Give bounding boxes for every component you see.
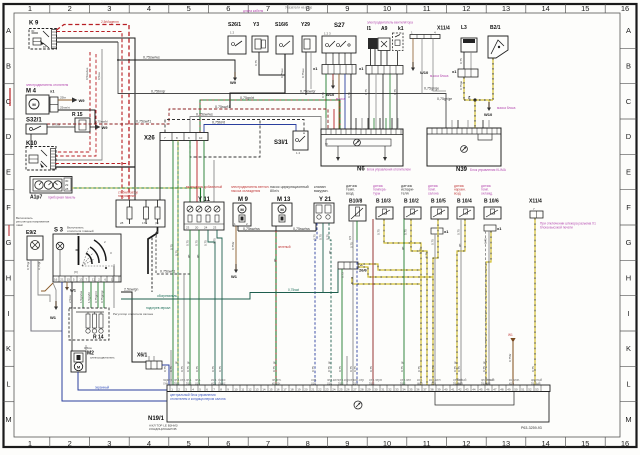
svg-text:10: 10 xyxy=(199,136,203,140)
svg-text:0,75sw: 0,75sw xyxy=(280,68,284,78)
svg-text:сер: сер xyxy=(485,381,490,385)
svg-text:13: 13 xyxy=(502,439,510,448)
svg-text:0,75: 0,75 xyxy=(326,234,330,240)
svg-text:0,75: 0,75 xyxy=(319,234,323,240)
svg-text:M: M xyxy=(625,415,631,424)
svg-text:30: 30 xyxy=(31,29,35,33)
svg-text:W1: W1 xyxy=(50,315,57,320)
svg-text:6: 6 xyxy=(226,439,230,448)
svg-text:0,75sw/bl: 0,75sw/bl xyxy=(95,120,108,124)
svg-text:16: 16 xyxy=(621,439,629,448)
svg-text:0,75: 0,75 xyxy=(180,366,184,372)
svg-text:R 14: R 14 xyxy=(93,335,104,341)
svg-text:26: 26 xyxy=(346,387,350,391)
svg-text:экранный: экранный xyxy=(95,386,109,390)
svg-text:W10: W10 xyxy=(484,112,493,117)
svg-text:бел: бел xyxy=(338,381,343,385)
svg-text:0,75: 0,75 xyxy=(213,238,217,244)
svg-text:25: 25 xyxy=(339,387,343,391)
svg-text:0,75: 0,75 xyxy=(482,366,486,372)
svg-text:G: G xyxy=(626,238,632,247)
svg-text:0,75gr/ge: 0,75gr/ge xyxy=(424,87,439,91)
svg-text:23: 23 xyxy=(325,387,329,391)
svg-text:23: 23 xyxy=(186,226,190,230)
svg-text:G: G xyxy=(6,238,12,247)
svg-text:40: 40 xyxy=(444,387,448,391)
svg-text:0,75sw/ws: 0,75sw/ws xyxy=(243,227,260,231)
svg-text:B 10/3: B 10/3 xyxy=(376,199,391,205)
svg-text:50: 50 xyxy=(514,387,518,391)
svg-text:возд: возд xyxy=(346,191,354,195)
svg-text:28: 28 xyxy=(360,387,364,391)
svg-text:11: 11 xyxy=(423,439,431,448)
svg-text:B 10/4: B 10/4 xyxy=(457,199,472,205)
svg-text:[X]: [X] xyxy=(74,270,78,274)
svg-text:0,75: 0,75 xyxy=(369,366,373,372)
svg-text:A1p7: A1p7 xyxy=(30,195,42,201)
svg-text:отопителем и кондиционером сал: отопителем и кондиционером салона xyxy=(170,397,226,401)
svg-text:салона: салона xyxy=(428,191,439,195)
svg-text:19: 19 xyxy=(297,387,301,391)
svg-text:0,75: 0,75 xyxy=(431,239,435,245)
svg-text:25br: 25br xyxy=(60,96,66,100)
svg-text:10: 10 xyxy=(234,387,238,391)
svg-text:0,5sw/ws: 0,5sw/ws xyxy=(85,67,89,80)
svg-text:F: F xyxy=(626,203,631,212)
svg-text:5: 5 xyxy=(187,439,191,448)
svg-text:0,75: 0,75 xyxy=(531,366,535,372)
svg-text:15: 15 xyxy=(581,439,589,448)
svg-text:приборная панель: приборная панель xyxy=(48,196,76,200)
svg-text:38: 38 xyxy=(430,387,434,391)
svg-text:0,75: 0,75 xyxy=(169,366,173,372)
svg-text:1 2: 1 2 xyxy=(296,151,301,155)
svg-text:x1: x1 xyxy=(497,226,502,231)
svg-text:охлажд.: охлажд. xyxy=(481,191,493,195)
svg-text:0,75bl: 0,75bl xyxy=(52,123,61,127)
svg-text:бел: бел xyxy=(174,381,179,385)
svg-text:0,75sw/gr: 0,75sw/gr xyxy=(300,89,316,93)
svg-text:1: 1 xyxy=(28,4,32,13)
svg-text:53: 53 xyxy=(535,387,539,391)
svg-text:36: 36 xyxy=(416,387,420,391)
svg-text:0,75: 0,75 xyxy=(218,366,222,372)
svg-text:14: 14 xyxy=(542,439,550,448)
svg-text:K: K xyxy=(6,344,11,353)
svg-text:0,75: 0,75 xyxy=(204,240,208,246)
svg-text:2,5sw/gn: 2,5sw/gn xyxy=(124,288,138,292)
svg-text:32: 32 xyxy=(388,387,392,391)
svg-text:0,75: 0,75 xyxy=(170,244,174,250)
svg-text:теля: теля xyxy=(401,191,409,195)
svg-text:Указатели на воде: Указатели на воде xyxy=(285,6,313,10)
svg-text:Блок управления отопителем: Блок управления отопителем xyxy=(367,168,411,172)
svg-text:бел: бел xyxy=(369,381,374,385)
svg-text:16: 16 xyxy=(276,387,280,391)
svg-text:бел: бел xyxy=(186,381,191,385)
svg-text:2: 2 xyxy=(68,439,72,448)
svg-text:L3: L3 xyxy=(461,25,467,31)
svg-text:4: 4 xyxy=(147,439,151,448)
svg-text:K: K xyxy=(626,344,631,353)
svg-text:A: A xyxy=(6,26,11,35)
svg-text:E: E xyxy=(626,168,631,177)
svg-text:13: 13 xyxy=(502,4,510,13)
svg-text:W10: W10 xyxy=(326,92,335,97)
svg-text:M 13: M 13 xyxy=(277,197,291,203)
svg-text:15: 15 xyxy=(269,387,273,391)
svg-text:12: 12 xyxy=(92,278,96,282)
svg-text:блока высокой печати: блока высокой печати xyxy=(540,226,573,230)
svg-text:28: 28 xyxy=(65,187,69,191)
svg-text:0,75: 0,75 xyxy=(311,366,315,372)
svg-text:gr: gr xyxy=(174,361,178,364)
svg-text:0,75: 0,75 xyxy=(195,366,199,372)
svg-text:I1: I1 xyxy=(367,26,371,32)
svg-text:46: 46 xyxy=(486,387,490,391)
svg-text:0,75: 0,75 xyxy=(419,248,423,254)
svg-text:син: син xyxy=(163,381,168,385)
svg-text:0,75: 0,75 xyxy=(459,58,463,64)
svg-text:B10/8: B10/8 xyxy=(349,199,363,205)
svg-text:10: 10 xyxy=(383,4,391,13)
svg-text:34: 34 xyxy=(402,387,406,391)
svg-text:0,75sw/t1: 0,75sw/t1 xyxy=(215,105,230,109)
svg-text:30: 30 xyxy=(374,387,378,391)
svg-text:0,75bl/rt: 0,75bl/rt xyxy=(212,120,225,124)
svg-text:20: 20 xyxy=(195,226,199,230)
svg-text:0,5sw: 0,5sw xyxy=(84,346,93,350)
svg-text:15: 15 xyxy=(581,4,589,13)
svg-text:электродвигатель: электродвигатель xyxy=(90,356,115,360)
svg-text:КОНДИЦИОНЕРОВ: КОНДИЦИОНЕРОВ xyxy=(149,427,177,431)
svg-text:F: F xyxy=(6,203,11,212)
svg-text:B 10/5: B 10/5 xyxy=(431,199,446,205)
svg-text:L: L xyxy=(6,380,10,389)
svg-text:12: 12 xyxy=(462,439,470,448)
svg-text:47: 47 xyxy=(493,387,497,391)
svg-text:0,75br: 0,75br xyxy=(231,241,235,250)
svg-text:0,75: 0,75 xyxy=(163,366,167,372)
svg-text:gn: gn xyxy=(401,246,405,250)
svg-text:0,75gr/ge: 0,75gr/ge xyxy=(437,97,452,101)
svg-text:1: 1 xyxy=(28,439,32,448)
svg-text:gr: gr xyxy=(327,361,331,364)
svg-text:29: 29 xyxy=(367,387,371,391)
svg-text:0,75ge: 0,75ge xyxy=(459,80,463,90)
svg-text:0,75: 0,75 xyxy=(377,229,381,235)
svg-text:W9: W9 xyxy=(102,125,109,130)
svg-text:gn: gn xyxy=(328,250,332,254)
svg-text:вакуумн.: вакуумн. xyxy=(314,189,329,193)
svg-text:27: 27 xyxy=(353,387,357,391)
svg-text:сер: сер xyxy=(311,381,316,385)
svg-text:gn: gn xyxy=(273,258,277,262)
svg-text:0,75: 0,75 xyxy=(425,252,429,258)
svg-text:0,75sw: 0,75sw xyxy=(301,68,305,78)
svg-text:R 15: R 15 xyxy=(72,112,83,118)
svg-text:0,75gn/gr: 0,75gn/gr xyxy=(100,290,104,303)
svg-text:электродвигатель отопителя: электродвигатель отопителя xyxy=(26,83,69,87)
svg-text:12: 12 xyxy=(462,4,470,13)
svg-text:43: 43 xyxy=(465,387,469,391)
svg-text:W1: W1 xyxy=(231,274,238,279)
svg-text:0,75: 0,75 xyxy=(327,366,331,372)
svg-text:1,5gn/bl: 1,5gn/bl xyxy=(87,292,91,303)
svg-text:39: 39 xyxy=(437,387,441,391)
svg-text:сер: сер xyxy=(431,381,436,385)
svg-text:44: 44 xyxy=(472,387,476,391)
svg-text:7: 7 xyxy=(266,4,270,13)
svg-text:0,75: 0,75 xyxy=(272,366,276,372)
svg-text:gn: gn xyxy=(458,243,462,247)
svg-text:0,75sw/t1: 0,75sw/t1 xyxy=(136,120,151,124)
svg-text:исл: исл xyxy=(211,381,216,385)
svg-text:M 9: M 9 xyxy=(238,197,249,203)
svg-text:Блок управления KLIMA: Блок управления KLIMA xyxy=(470,168,507,172)
svg-text:H: H xyxy=(6,274,11,283)
svg-text:0,75: 0,75 xyxy=(321,92,325,98)
svg-text:0,75: 0,75 xyxy=(431,366,435,372)
svg-text:0,75swt: 0,75swt xyxy=(288,288,299,292)
svg-text:0,75: 0,75 xyxy=(254,60,258,66)
svg-text:напряжения: напряжения xyxy=(118,194,136,198)
svg-text:gr: gr xyxy=(453,361,457,364)
svg-text:W1: W1 xyxy=(508,333,513,337)
svg-text:0,75: 0,75 xyxy=(350,242,354,248)
svg-text:2,5rt/lagenm: 2,5rt/lagenm xyxy=(101,20,119,24)
svg-text:2,5sw: 2,5sw xyxy=(68,294,72,303)
svg-text:25sw/rt: 25sw/rt xyxy=(60,106,70,110)
svg-text:0,75: 0,75 xyxy=(364,89,368,95)
svg-text:26/6: 26/6 xyxy=(359,268,368,273)
svg-text:Y 21: Y 21 xyxy=(319,197,332,203)
svg-text:18: 18 xyxy=(290,387,294,391)
svg-text:0,75: 0,75 xyxy=(457,229,461,235)
svg-text:0,75: 0,75 xyxy=(484,238,488,244)
svg-text:S 3: S 3 xyxy=(54,228,64,234)
svg-text:49: 49 xyxy=(507,387,511,391)
svg-text:Y29: Y29 xyxy=(301,22,310,28)
svg-text:0,75: 0,75 xyxy=(417,366,421,372)
svg-text:A: A xyxy=(626,26,631,35)
svg-text:0,75gr: 0,75gr xyxy=(26,261,30,270)
svg-text:E: E xyxy=(6,168,11,177)
svg-text:B: B xyxy=(6,62,11,71)
svg-text:45: 45 xyxy=(479,387,483,391)
svg-text:9: 9 xyxy=(345,4,349,13)
svg-text:N19/1: N19/1 xyxy=(148,416,165,422)
svg-text:x1: x1 xyxy=(452,69,457,74)
svg-text:13: 13 xyxy=(255,387,259,391)
svg-text:13: 13 xyxy=(79,278,83,282)
svg-text:электродвигатель вентилятора: электродвигатель вентилятора xyxy=(367,21,413,25)
svg-text:H: H xyxy=(626,274,631,283)
svg-text:gr: gr xyxy=(186,361,190,364)
svg-text:0,75: 0,75 xyxy=(175,250,179,256)
svg-text:21: 21 xyxy=(60,278,64,282)
svg-text:x1: x1 xyxy=(444,229,449,234)
svg-text:W1: W1 xyxy=(70,288,77,293)
svg-text:X6/1: X6/1 xyxy=(137,353,148,359)
svg-text:C: C xyxy=(6,97,12,106)
svg-text:gn: gn xyxy=(196,254,200,258)
svg-text:белый: белый xyxy=(531,381,541,385)
svg-text:(1): (1) xyxy=(155,221,159,225)
svg-text:B 10/6: B 10/6 xyxy=(484,199,499,205)
svg-text:0,75sw/ws: 0,75sw/ws xyxy=(293,227,310,231)
svg-text:M: M xyxy=(5,415,11,424)
svg-text:длина кабеля: длина кабеля xyxy=(243,9,263,13)
svg-text:12: 12 xyxy=(248,387,252,391)
svg-text:включатель добавочный: включатель добавочный xyxy=(186,185,222,189)
svg-text:11: 11 xyxy=(423,4,431,13)
svg-text:0,75sw/ws: 0,75sw/ws xyxy=(196,112,213,116)
svg-text:жел: жел xyxy=(417,381,423,385)
svg-text:48: 48 xyxy=(500,387,504,391)
svg-text:51: 51 xyxy=(521,387,525,391)
svg-text:87: 87 xyxy=(43,45,47,49)
svg-text:0,75: 0,75 xyxy=(400,366,404,372)
svg-text:N6: N6 xyxy=(357,167,365,173)
svg-text:насоса охлаждения: насоса охлаждения xyxy=(231,189,260,193)
svg-text:42: 42 xyxy=(458,387,462,391)
svg-text:B 10/2: B 10/2 xyxy=(404,199,419,205)
svg-text:41: 41 xyxy=(451,387,455,391)
svg-text:масса блока: масса блока xyxy=(497,106,516,110)
svg-text:6: 6 xyxy=(226,4,230,13)
svg-text:0,75: 0,75 xyxy=(353,366,357,372)
svg-text:E9/2: E9/2 xyxy=(26,230,37,236)
svg-text:x1: x1 xyxy=(313,66,318,71)
svg-text:кор: кор xyxy=(509,381,514,385)
svg-text:зеленый: зеленый xyxy=(278,245,291,249)
svg-text:4: 4 xyxy=(147,4,151,13)
svg-text:3: 3 xyxy=(107,439,111,448)
svg-text:0,75: 0,75 xyxy=(347,92,351,98)
svg-text:0,75br: 0,75br xyxy=(508,353,512,362)
svg-text:A9: A9 xyxy=(381,26,388,32)
svg-text:35: 35 xyxy=(409,387,413,391)
svg-text:gr: gr xyxy=(272,361,276,364)
svg-text:D: D xyxy=(626,132,632,141)
svg-text:37: 37 xyxy=(423,387,427,391)
svg-text:gr: gr xyxy=(400,361,404,364)
svg-text:возд: возд xyxy=(454,191,461,195)
svg-text:0,75: 0,75 xyxy=(186,240,190,246)
svg-text:S3l/1: S3l/1 xyxy=(274,140,289,146)
svg-text:11: 11 xyxy=(241,387,244,391)
svg-text:Регулятор отопителя салона: Регулятор отопителя салона xyxy=(113,312,153,316)
svg-text:0,75: 0,75 xyxy=(211,366,215,372)
svg-text:подогрев зеркал: подогрев зеркал xyxy=(146,306,171,310)
svg-text:1,5gn/sw: 1,5gn/sw xyxy=(79,290,83,303)
svg-text:I: I xyxy=(7,309,9,318)
svg-text:ламп: ламп xyxy=(16,223,23,227)
svg-text:0,75: 0,75 xyxy=(457,366,461,372)
svg-text:80л/ч: 80л/ч xyxy=(270,189,279,193)
svg-text:28: 28 xyxy=(120,221,124,225)
svg-text:P63-3259-93: P63-3259-93 xyxy=(521,426,542,430)
svg-text:отопителя главный: отопителя главный xyxy=(67,229,94,233)
svg-text:x1: x1 xyxy=(50,89,55,94)
svg-text:3: 3 xyxy=(107,4,111,13)
svg-text:31: 31 xyxy=(381,387,385,391)
svg-text:2: 2 xyxy=(68,4,72,13)
svg-text:7: 7 xyxy=(266,439,270,448)
svg-text:15: 15 xyxy=(67,278,71,282)
svg-text:0,75gn/rt: 0,75gn/rt xyxy=(94,291,98,303)
svg-text:N39: N39 xyxy=(456,167,468,173)
svg-text:фикс: фикс xyxy=(218,381,226,385)
svg-text:x1: x1 xyxy=(359,66,364,71)
svg-text:1 2: 1 2 xyxy=(230,31,235,35)
svg-text:0,75: 0,75 xyxy=(313,234,317,240)
svg-text:17: 17 xyxy=(283,387,287,391)
svg-text:K 9: K 9 xyxy=(29,21,39,27)
svg-text:сер: сер xyxy=(195,381,200,385)
svg-text:X11/4: X11/4 xyxy=(437,26,450,32)
svg-text:жел: жел xyxy=(457,381,463,385)
svg-text:10: 10 xyxy=(383,439,391,448)
svg-text:33: 33 xyxy=(395,387,399,391)
svg-text:gn: gn xyxy=(187,254,191,258)
svg-text:14: 14 xyxy=(542,4,550,13)
svg-text:W: W xyxy=(325,142,328,146)
svg-text:21: 21 xyxy=(311,387,315,391)
svg-text:I: I xyxy=(627,309,629,318)
svg-text:0,5sw: 0,5sw xyxy=(97,71,101,80)
svg-text:52: 52 xyxy=(528,387,532,391)
svg-text:обогреватель: обогреватель xyxy=(157,294,177,298)
svg-text:туры: туры xyxy=(373,191,381,195)
svg-text:красн: красн xyxy=(272,381,281,385)
svg-text:9: 9 xyxy=(345,439,349,448)
svg-text:0,75: 0,75 xyxy=(186,366,190,372)
svg-text:0,75: 0,75 xyxy=(404,229,408,235)
svg-text:20: 20 xyxy=(304,387,308,391)
svg-text:сер: сер xyxy=(327,381,332,385)
svg-text:W9: W9 xyxy=(79,98,86,103)
svg-text:k1: k1 xyxy=(398,26,404,32)
svg-text:S27: S27 xyxy=(334,23,345,29)
svg-text:B2/1: B2/1 xyxy=(490,25,501,31)
svg-text:8: 8 xyxy=(306,439,310,448)
svg-text:B: B xyxy=(626,62,631,71)
svg-text:C: C xyxy=(626,97,632,106)
svg-text:D: D xyxy=(6,132,12,141)
svg-text:0,75br/gr: 0,75br/gr xyxy=(151,89,166,93)
svg-text:X11/4: X11/4 xyxy=(529,199,542,205)
svg-text:17a: 17a xyxy=(142,221,147,225)
svg-text:0,75sw/ws: 0,75sw/ws xyxy=(143,56,160,60)
svg-text:1 2 3: 1 2 3 xyxy=(324,32,331,36)
svg-text:Y3: Y3 xyxy=(253,22,259,28)
svg-text:24: 24 xyxy=(204,226,208,230)
svg-text:L: L xyxy=(626,380,630,389)
svg-text:0,5: 0,5 xyxy=(348,235,352,240)
svg-text:0,75: 0,75 xyxy=(195,240,199,246)
svg-text:24: 24 xyxy=(332,387,336,391)
svg-text:X26: X26 xyxy=(144,136,155,142)
svg-text:S32/1: S32/1 xyxy=(26,118,42,124)
svg-text:22: 22 xyxy=(318,387,322,391)
svg-text:16: 16 xyxy=(54,278,58,282)
svg-text:5: 5 xyxy=(187,4,191,13)
svg-text:0,75gn/rt: 0,75gn/rt xyxy=(240,96,254,100)
svg-text:23: 23 xyxy=(213,226,217,230)
svg-text:14: 14 xyxy=(262,387,266,391)
